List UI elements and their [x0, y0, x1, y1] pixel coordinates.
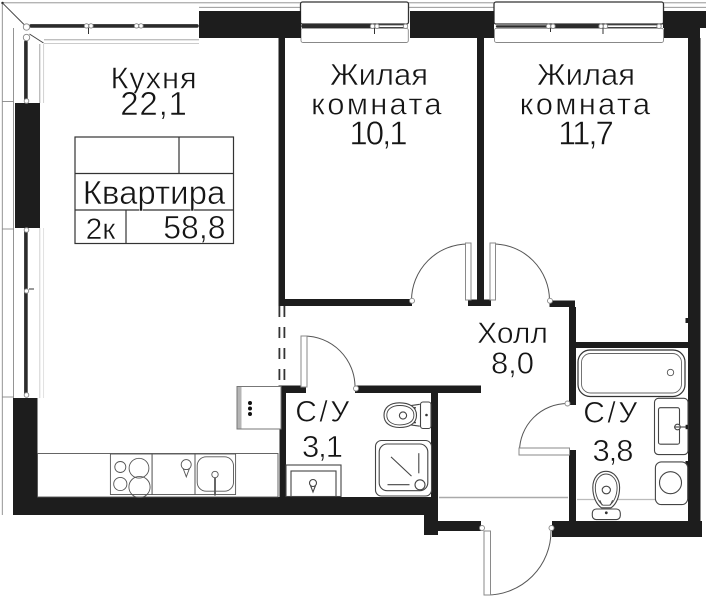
svg-text:22,1: 22,1 — [120, 85, 187, 122]
svg-text:3,1: 3,1 — [302, 429, 342, 464]
svg-text:Квартира: Квартира — [83, 174, 226, 211]
svg-text:11,7: 11,7 — [558, 115, 612, 152]
svg-text:58,8: 58,8 — [163, 210, 225, 246]
svg-text:3,8: 3,8 — [592, 433, 632, 468]
svg-text:С/У: С/У — [295, 396, 352, 429]
svg-text:2к: 2к — [86, 213, 117, 246]
svg-text:С/У: С/У — [583, 397, 640, 430]
svg-text:8,0: 8,0 — [491, 346, 534, 381]
svg-text:10,1: 10,1 — [349, 115, 406, 152]
